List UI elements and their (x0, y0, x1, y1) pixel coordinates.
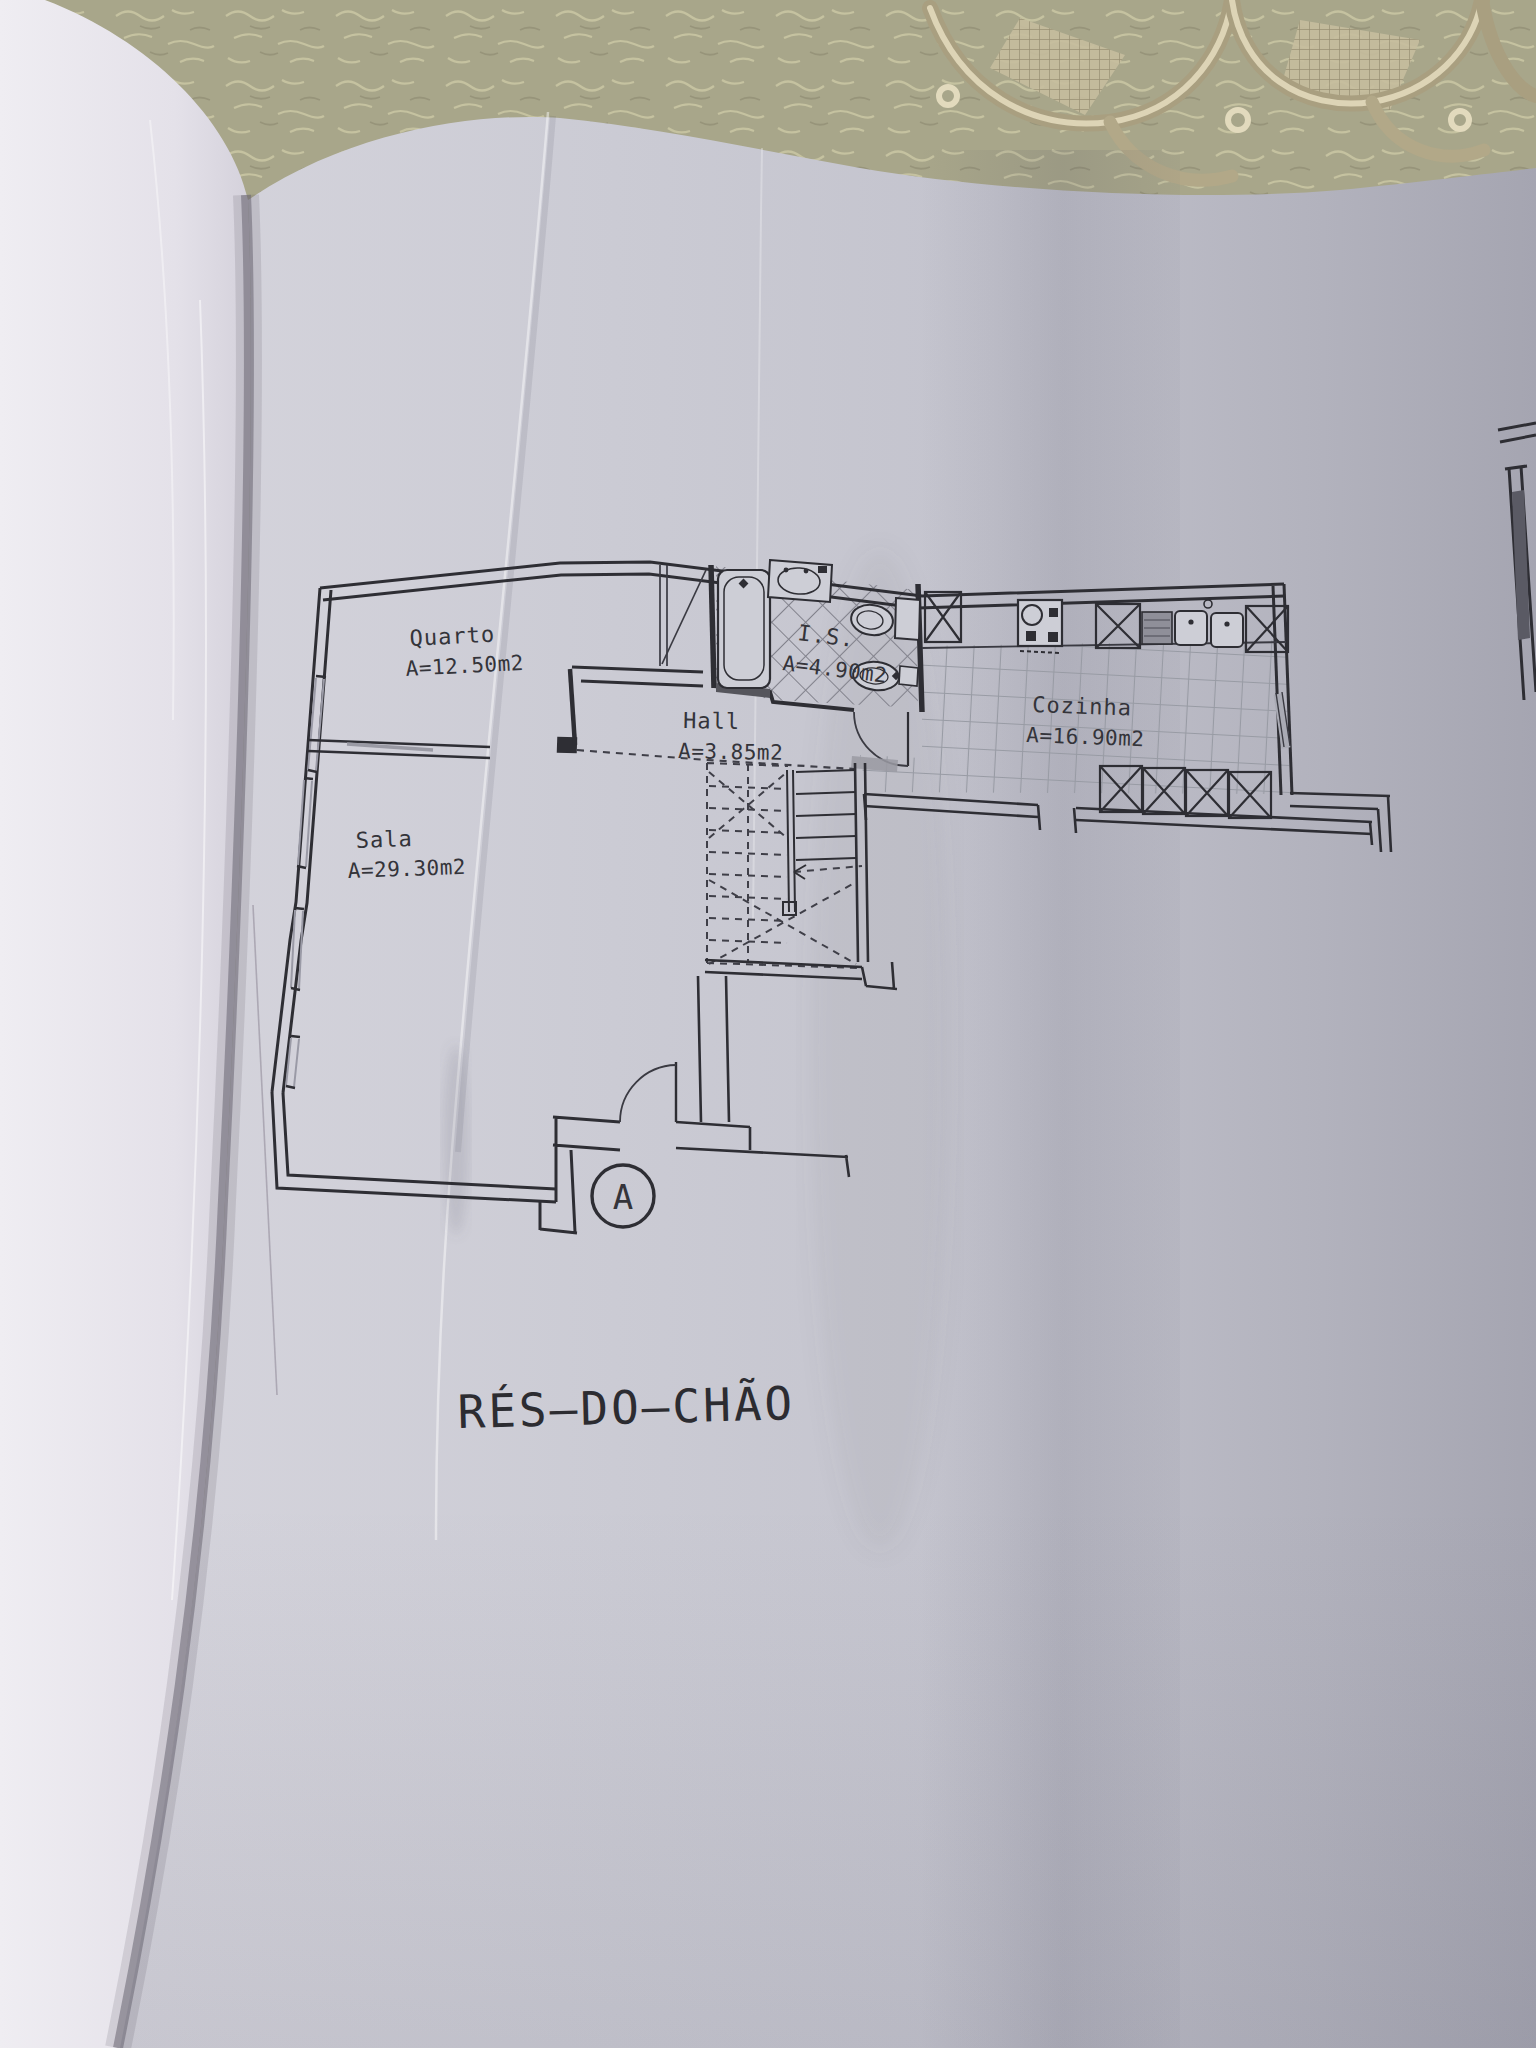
room-label-quarto: Quarto (409, 622, 496, 651)
bathtub-icon (718, 570, 770, 688)
floor-title: RÉS–DO–CHÃO (457, 1376, 796, 1439)
stove-icon (1018, 600, 1062, 653)
photograph-of-floor-plan: A Quarto A=12.50m2 Sala A=29.30m2 Hall A… (0, 0, 1536, 2048)
room-label-cozinha: Cozinha (1032, 692, 1133, 720)
room-area-cozinha: A=16.90m2 (1026, 723, 1145, 751)
room-area-hall: A=3.85m2 (678, 739, 784, 765)
washbasin-icon (768, 560, 832, 602)
section-marker-letter: A (613, 1177, 633, 1217)
room-label-sala: Sala (355, 826, 413, 853)
room-area-sala: A=29.30m2 (347, 855, 466, 883)
room-label-hall: Hall (683, 708, 740, 734)
